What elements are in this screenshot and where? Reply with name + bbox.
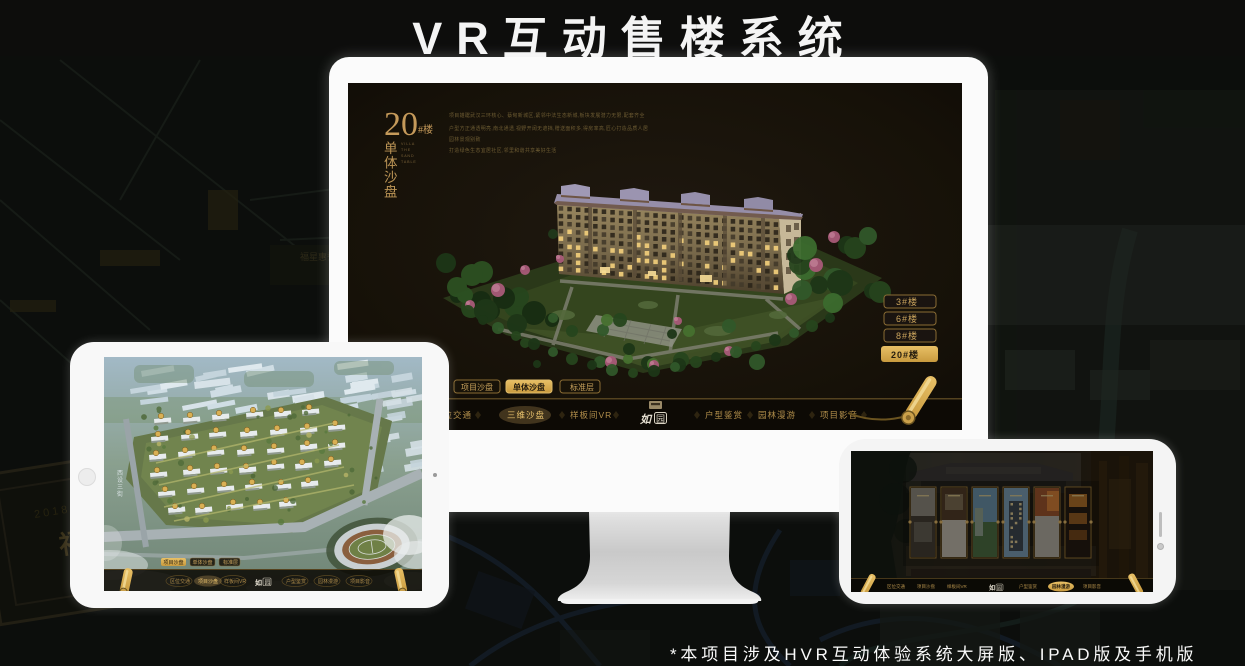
- svg-text:8#楼: 8#楼: [896, 330, 918, 341]
- svg-text:园林漫游: 园林漫游: [1052, 583, 1070, 590]
- svg-text:园林景观别致: 园林景观别致: [449, 136, 481, 143]
- svg-text:单体沙盘: 单体沙盘: [384, 141, 398, 200]
- svg-text:区位交通: 区位交通: [170, 578, 190, 585]
- svg-text:园林漫游: 园林漫游: [318, 578, 338, 585]
- svg-text:园: 园: [265, 580, 271, 587]
- svg-text:项目沙盘: 项目沙盘: [461, 382, 493, 392]
- svg-text:项目影音: 项目影音: [350, 578, 370, 585]
- svg-text:样板间VR: 样板间VR: [947, 583, 968, 590]
- svg-text:打造绿色生态宜居社区,邻里和谐共享美好生活: 打造绿色生态宜居社区,邻里和谐共享美好生活: [449, 147, 557, 154]
- svg-text:T H E: T H E: [401, 148, 411, 152]
- svg-text:三维沙盘: 三维沙盘: [507, 410, 545, 420]
- svg-text:项目雄踞武汉三环核心、蔡甸新城区,紧邻中法生态新城,板块发展: 项目雄踞武汉三环核心、蔡甸新城区,紧邻中法生态新城,板块发展潜力无限,配套齐全: [449, 112, 645, 119]
- svg-text:园林漫游: 园林漫游: [758, 410, 796, 420]
- svg-text:标准层: 标准层: [223, 559, 238, 566]
- svg-text:如: 如: [255, 578, 262, 587]
- svg-text:样板间VR: 样板间VR: [570, 410, 612, 420]
- svg-text:项目沙盘: 项目沙盘: [917, 583, 935, 590]
- svg-text:户型鉴赏: 户型鉴赏: [286, 578, 306, 585]
- svg-text:项目影音: 项目影音: [1083, 583, 1101, 590]
- svg-text:园: 园: [656, 414, 665, 424]
- svg-text:V I L L A: V I L L A: [401, 142, 415, 146]
- svg-text:3#楼: 3#楼: [896, 296, 918, 307]
- svg-text:户型鉴赏: 户型鉴赏: [705, 410, 743, 420]
- svg-text:项目沙盘: 项目沙盘: [198, 578, 218, 585]
- svg-text:如: 如: [989, 584, 995, 592]
- svg-text:户型鉴赏: 户型鉴赏: [1019, 583, 1037, 590]
- svg-text:20#楼: 20#楼: [891, 349, 919, 360]
- svg-text:6#楼: 6#楼: [896, 313, 918, 324]
- svg-text:#楼: #楼: [418, 123, 433, 136]
- svg-text:园: 园: [997, 586, 1002, 592]
- svg-text:20: 20: [384, 106, 418, 143]
- svg-text:单体沙盘: 单体沙盘: [193, 559, 213, 566]
- svg-text:区位交通: 区位交通: [887, 583, 905, 590]
- svg-text:T A B L E: T A B L E: [401, 160, 416, 164]
- svg-text:项目沙盘: 项目沙盘: [164, 559, 184, 566]
- svg-text:样板间VR: 样板间VR: [224, 578, 246, 585]
- svg-text:户型方正通透明亮,南北通透,视野开阔无遮挡,赠送面积多,得房: 户型方正通透明亮,南北通透,视野开阔无遮挡,赠送面积多,得房率高,匠心打造品质人…: [449, 125, 648, 132]
- svg-text:S A N D: S A N D: [401, 154, 414, 158]
- svg-text:单体沙盘: 单体沙盘: [513, 382, 545, 392]
- svg-text:标准层: 标准层: [570, 382, 594, 392]
